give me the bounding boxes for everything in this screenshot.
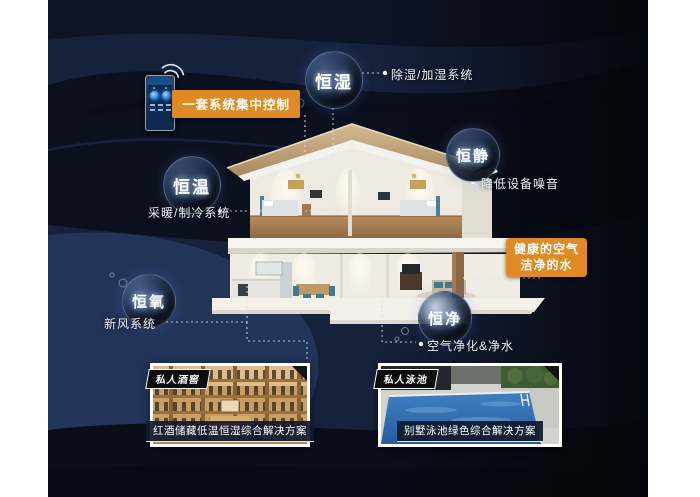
dial-icon — [162, 91, 171, 100]
wine-cellar-caption: 红酒储藏低温恒湿综合解决方案 — [146, 421, 314, 442]
bubble-constant-humidity: 恒湿 — [305, 51, 363, 109]
wine-cellar-tag: 私人酒窖 — [145, 369, 211, 389]
note-dehumidify-humidify: 除湿/加湿系统 — [391, 66, 473, 83]
health-badge-line2: 洁净的水 — [514, 257, 579, 273]
health-badge-line1: 健康的空气 — [514, 241, 579, 257]
smart-control-panel — [145, 75, 175, 131]
dial-icon — [150, 91, 159, 100]
card-fold-corner — [292, 366, 307, 381]
pool-tag: 私人泳池 — [373, 369, 439, 389]
note-noise-reduction: 降低设备噪音 — [481, 175, 559, 192]
upper-floor-rooms — [250, 169, 462, 238]
note-fresh-air: 新风系统 — [104, 315, 156, 332]
central-control-badge: 一套系统集中控制 — [172, 90, 300, 118]
control-panel-screen — [148, 78, 172, 128]
pool-card: 私人泳池 别墅泳池绿色综合解决方案 — [378, 363, 562, 447]
poster-canvas: 一套系统集中控制 健康的空气 洁净的水 恒湿 恒静 恒温 恒氧 恒净 除湿/加湿… — [48, 0, 648, 497]
card-fold-corner — [544, 366, 559, 381]
poster-page: 一套系统集中控制 健康的空气 洁净的水 恒湿 恒静 恒温 恒氧 恒净 除湿/加湿… — [0, 0, 700, 497]
wine-cellar-card: 私人酒窖 红酒储藏低温恒湿综合解决方案 — [150, 363, 310, 447]
note-heating-cooling: 采暖/制冷系统 — [148, 204, 230, 221]
bubble-constant-quiet: 恒静 — [446, 128, 500, 182]
note-air-water-purify: 空气净化&净水 — [427, 337, 514, 354]
pool-caption: 别墅泳池绿色综合解决方案 — [397, 421, 543, 442]
healthy-air-water-badge: 健康的空气 洁净的水 — [506, 238, 587, 277]
